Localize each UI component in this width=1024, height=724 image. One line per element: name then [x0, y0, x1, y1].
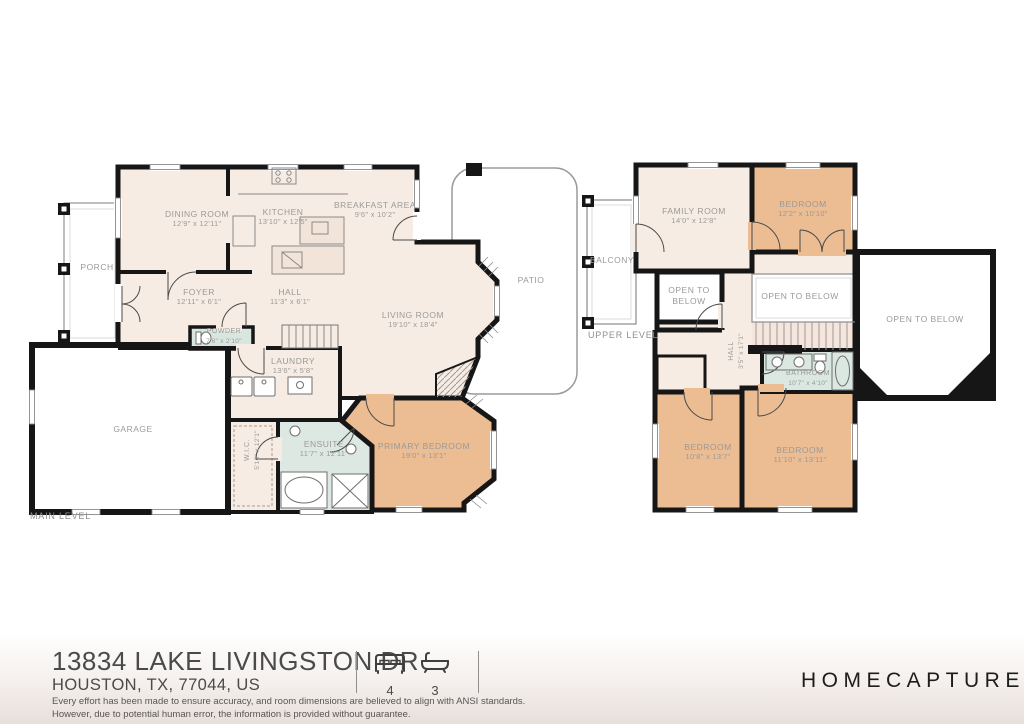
room-label-balcony: BALCONY: [590, 255, 634, 265]
room-dims: 10'8" x 13'7": [684, 452, 731, 462]
room-name: POWDER: [206, 327, 242, 337]
disclaimer-text: Every effort has been made to ensure acc…: [52, 695, 525, 721]
room-name: BEDROOM: [778, 199, 828, 209]
floorplan-canvas: [0, 0, 1024, 724]
beds-stat: 4: [373, 650, 407, 698]
room-name: OPEN TO BELOW: [761, 291, 839, 301]
room-dims: 9'6" x 10'2": [334, 210, 416, 220]
room-dims: 19'10" x 18'4": [382, 320, 444, 330]
property-address: 13834 LAKE LIVINGSTON DR HOUSTON, TX, 77…: [52, 647, 419, 695]
footer-band: 13834 LAKE LIVINGSTON DR HOUSTON, TX, 77…: [0, 636, 1024, 724]
footer-divider-right: [478, 651, 479, 693]
room-name: LIVING ROOM: [382, 310, 444, 320]
room-name: W.I.C.: [243, 430, 253, 470]
room-label-dining: DINING ROOM 12'9" x 12'11": [165, 209, 229, 229]
brand-logo: HOMECAPTURE: [801, 669, 1024, 693]
room-name: PATIO: [518, 275, 545, 285]
room-label-powder: POWDER 7'6" x 2'10": [206, 327, 242, 347]
bed-icon: [373, 650, 407, 674]
room-name: PORCH: [80, 262, 113, 272]
room-dims: 7'6" x 2'10": [206, 337, 242, 347]
room-name: GARAGE: [113, 424, 152, 434]
room-dims: 12'11" x 6'1": [177, 297, 221, 307]
room-label-primary: PRIMARY BEDROOM 19'0" x 13'1": [378, 441, 470, 461]
room-dims: 11'3" x 6'1": [270, 297, 310, 307]
room-name: BREAKFAST AREA: [334, 200, 416, 210]
room-label-foyer: FOYER 12'11" x 6'1": [177, 287, 221, 307]
main-level-tag: MAIN LEVEL: [30, 511, 91, 521]
room-dims: 19'0" x 13'1": [378, 451, 470, 461]
footer-divider-left: [356, 651, 357, 693]
disclaimer-line2: However, due to potential human error, t…: [52, 708, 525, 721]
room-name: FAMILY ROOM: [662, 206, 726, 216]
room-name: FOYER: [177, 287, 221, 297]
room-dims: 13'10" x 12'5": [258, 217, 308, 227]
room-label-laundry: LAUNDRY 13'6" x 5'8": [271, 356, 315, 376]
room-dims: 5'10" x 12'1": [253, 430, 263, 470]
room-label-porch: PORCH: [80, 262, 113, 272]
porch-shape: [58, 203, 121, 344]
room-name: OPEN TO BELOW: [664, 285, 714, 307]
room-label-open-large: OPEN TO BELOW: [886, 314, 964, 324]
room-label-family: FAMILY ROOM 14'0" x 12'8": [662, 206, 726, 226]
room-label-bedroom-c: BEDROOM 11'10" x 13'11": [774, 445, 827, 465]
room-name: PRIMARY BEDROOM: [378, 441, 470, 451]
address-line2: HOUSTON, TX, 77044, US: [52, 675, 419, 695]
room-label-upper-hall: HALL 3'5" x 17'1": [727, 333, 747, 369]
room-label-open-mid: OPEN TO BELOW: [761, 291, 839, 301]
room-name: BEDROOM: [774, 445, 827, 455]
room-dims: 12'9" x 12'11": [165, 219, 229, 229]
bath-icon: [418, 650, 452, 674]
room-dims: 14'0" x 12'8": [662, 216, 726, 226]
room-label-bedroom-b: BEDROOM 10'8" x 13'7": [684, 442, 731, 462]
room-dims: 12'2" x 10'10": [778, 209, 828, 219]
upper-level-tag: UPPER LEVEL: [588, 330, 658, 340]
room-name: HALL: [270, 287, 310, 297]
disclaimer-line1: Every effort has been made to ensure acc…: [52, 695, 525, 708]
room-label-kitchen: KITCHEN 13'10" x 12'5": [258, 207, 308, 227]
room-dims: 10'7" x 4'10": [786, 379, 830, 389]
floorplan-page: DINING ROOM 12'9" x 12'11" KITCHEN 13'10…: [0, 0, 1024, 724]
room-name: ENSUITE: [300, 439, 348, 449]
baths-stat: 3: [418, 650, 452, 698]
room-label-bedroom-a: BEDROOM 12'2" x 10'10": [778, 199, 828, 219]
room-dims: 11'7" x 12'11": [300, 449, 348, 459]
room-label-living: LIVING ROOM 19'10" x 18'4": [382, 310, 444, 330]
patio-wall-stub: [466, 163, 482, 176]
room-name: HALL: [727, 333, 737, 369]
room-name: BEDROOM: [684, 442, 731, 452]
room-name: OPEN TO BELOW: [886, 314, 964, 324]
room-label-ensuite: ENSUITE 11'7" x 12'11": [300, 439, 348, 459]
room-label-wic: W.I.C. 5'10" x 12'1": [243, 430, 263, 470]
open-to-below-large-shape: [857, 252, 993, 398]
room-label-bathroom: BATHROOM 10'7" x 4'10": [786, 369, 830, 389]
room-name: LAUNDRY: [271, 356, 315, 366]
room-name: BATHROOM: [786, 369, 830, 379]
room-label-hall: HALL 11'3" x 6'1": [270, 287, 310, 307]
address-line1: 13834 LAKE LIVINGSTON DR: [52, 647, 419, 675]
laundry-fixtures: [231, 377, 312, 396]
stairs-main: [282, 325, 338, 348]
room-name: BALCONY: [590, 255, 634, 265]
room-label-garage: GARAGE: [113, 424, 152, 434]
room-label-patio: PATIO: [518, 275, 545, 285]
room-dims: 11'10" x 13'11": [774, 455, 827, 465]
room-label-open-small: OPEN TO BELOW: [664, 285, 714, 307]
room-name: KITCHEN: [258, 207, 308, 217]
room-label-breakfast: BREAKFAST AREA 9'6" x 10'2": [334, 200, 416, 220]
room-dims: 3'5" x 17'1": [737, 333, 747, 369]
room-name: DINING ROOM: [165, 209, 229, 219]
room-dims: 13'6" x 5'8": [271, 366, 315, 376]
